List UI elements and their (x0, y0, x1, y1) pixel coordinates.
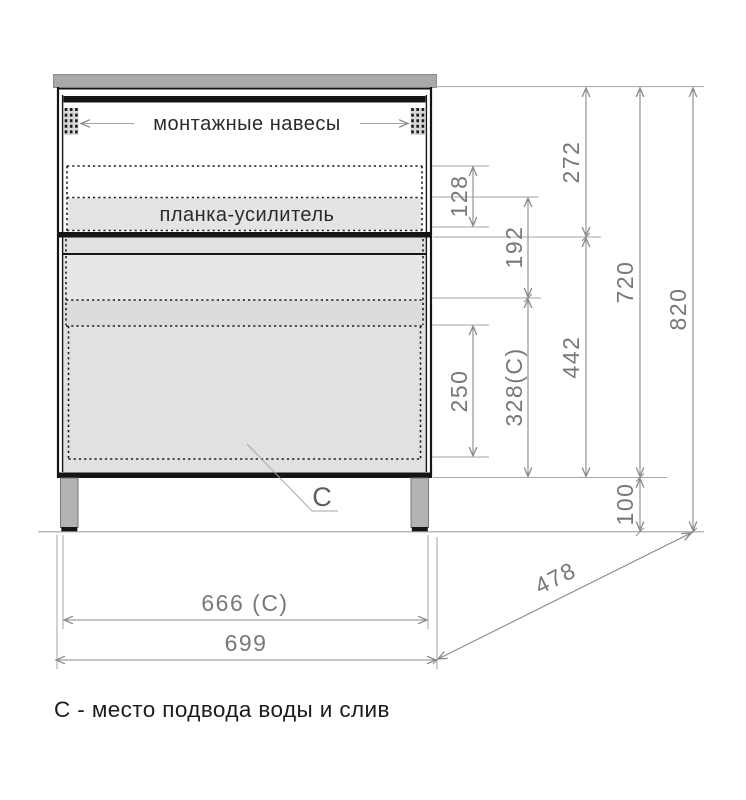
dim-720: 720 (612, 88, 640, 477)
dim-100: 100 (612, 479, 640, 531)
drain-label: C (312, 482, 332, 512)
leg-body (411, 478, 429, 528)
cabinet-bottom (57, 473, 432, 479)
dim-128-label: 128 (446, 175, 472, 218)
dim-250-label: 250 (446, 370, 472, 413)
mounting-hanger-right (411, 108, 426, 135)
leg-right (411, 478, 429, 532)
dim-820-label: 820 (665, 288, 691, 331)
dim-192-label: 192 (501, 226, 527, 269)
dim-442: 442 (558, 238, 586, 477)
dim-478-label: 478 (530, 557, 580, 599)
dim-328: 328(C) (501, 299, 528, 477)
dim-128: 128 (446, 167, 473, 226)
leg-foot (61, 527, 77, 532)
leg-foot (412, 527, 428, 532)
dim-192: 192 (501, 198, 528, 297)
dim-699-label: 699 (225, 630, 268, 656)
lower-band-mid (64, 300, 425, 326)
dim-442-label: 442 (558, 336, 584, 379)
dim-720-label: 720 (612, 261, 638, 304)
plank-label: планка-усилитель (160, 204, 335, 226)
caption-drain-note: С - место подвода воды и слив (54, 697, 390, 722)
dim-100-label: 100 (612, 483, 638, 526)
countertop (54, 75, 437, 88)
lower-band-upper (64, 255, 425, 300)
dim-272-label: 272 (558, 141, 584, 184)
dim-328-label: 328(C) (501, 347, 527, 426)
dim-666-label: 666 (C) (201, 590, 288, 616)
dim-478: 478 (438, 533, 691, 659)
leg-left (61, 478, 79, 532)
technical-drawing-cabinet: монтажные навесы планка-усилитель (0, 0, 746, 800)
section-divider (57, 232, 432, 238)
cabinet: монтажные навесы планка-усилитель (54, 75, 437, 532)
mounting-hanger-left (64, 108, 79, 135)
hangers-label: монтажные навесы (153, 113, 341, 135)
dim-272: 272 (558, 88, 586, 236)
dim-820: 820 (665, 88, 693, 531)
leg-body (61, 478, 79, 528)
dim-250: 250 (446, 326, 473, 456)
drawing-canvas: монтажные навесы планка-усилитель (0, 0, 746, 800)
top-rail (64, 96, 426, 103)
dim-666: 666 (C) (64, 590, 427, 620)
dim-699: 699 (56, 630, 436, 660)
